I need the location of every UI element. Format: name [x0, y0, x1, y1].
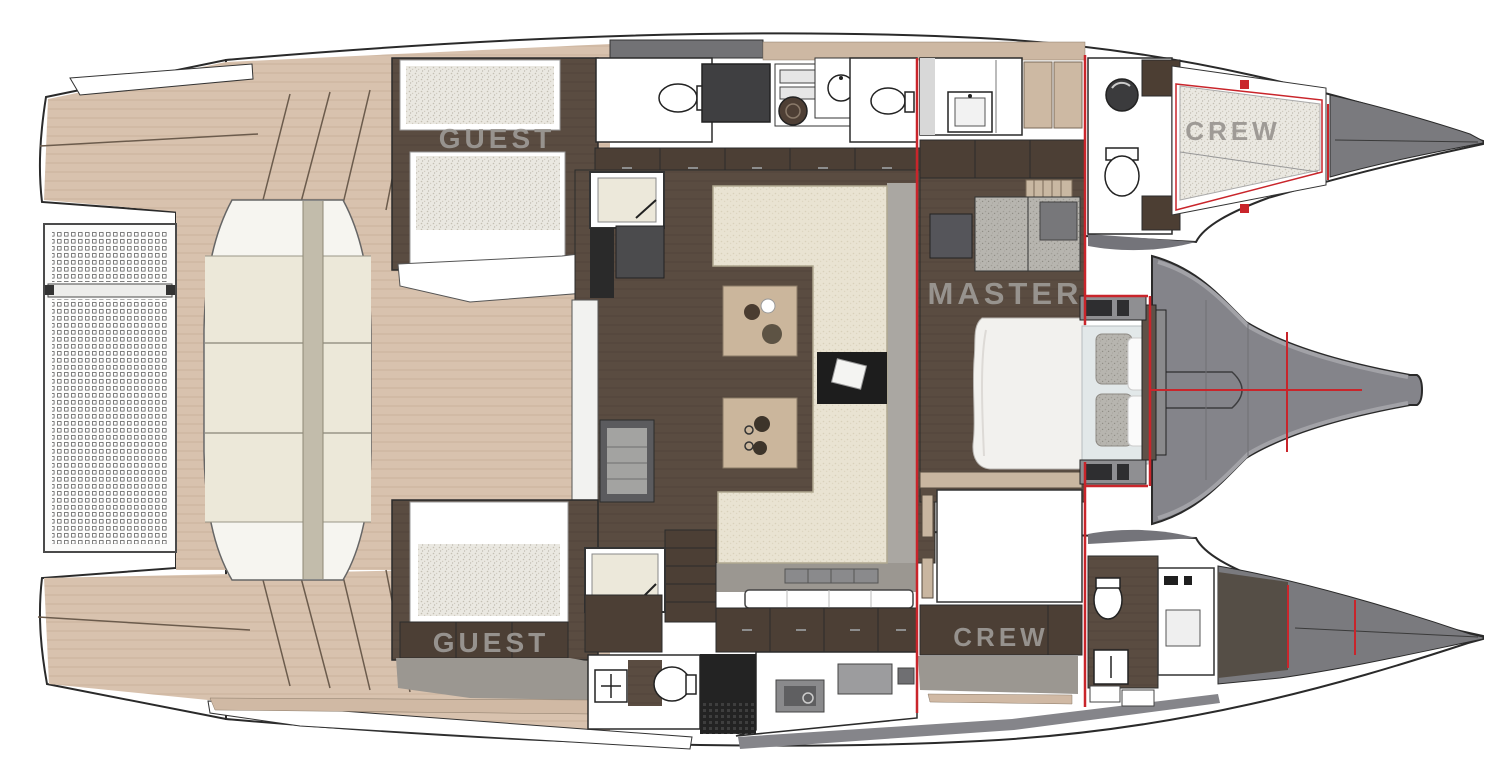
hinge	[45, 285, 54, 295]
crew-deck-band	[918, 656, 1078, 694]
crew-berth-panel	[937, 490, 1082, 602]
coffee-table	[723, 286, 797, 356]
master-aft-sill	[920, 472, 1082, 488]
crew-cabinet-white	[1158, 568, 1214, 675]
galley-cabinets	[585, 595, 662, 652]
master-bed	[973, 305, 1166, 469]
companionway-stairs	[665, 530, 716, 622]
aft-platform-trampoline	[44, 224, 176, 552]
crew-seat	[1122, 690, 1154, 706]
guest-starboard-label: GUEST	[433, 627, 549, 658]
crew-port-label: CREW	[1185, 116, 1280, 146]
gray-cabinet	[616, 226, 664, 278]
washer-door-icon	[779, 97, 807, 125]
nightstand	[1080, 296, 1146, 320]
port-bow-deck	[1330, 95, 1483, 177]
crew-teak-strip	[928, 694, 1072, 704]
deck-grate-hatch	[700, 654, 756, 700]
galley-sink-icon	[776, 680, 824, 712]
toilet-icon	[1094, 578, 1122, 619]
port-bathroom-2	[850, 58, 917, 142]
guest-port-label: GUEST	[439, 123, 555, 154]
master-duvet	[973, 318, 1085, 469]
hull-access-hatch	[600, 420, 654, 502]
master-bench	[930, 214, 972, 258]
ac-vent-grille	[1026, 180, 1072, 197]
floor-plan-canvas: GUEST CREW MASTER CREW GUEST	[0, 0, 1500, 780]
appliance	[898, 668, 914, 684]
nightstand	[1080, 460, 1146, 484]
coffee-table	[723, 398, 797, 468]
toilet-icon	[1105, 148, 1139, 196]
pillow	[1096, 334, 1132, 384]
crew-quarters-starboard	[918, 490, 1214, 706]
black-cabinet	[590, 228, 614, 298]
catamaran-floor-plan: GUEST CREW MASTER CREW GUEST	[0, 0, 1500, 780]
master-forward-cabinets	[920, 140, 1085, 178]
hinge	[166, 285, 175, 295]
cooktop	[838, 664, 892, 694]
salon-carpet-border-right	[887, 183, 917, 563]
master-bathroom	[920, 58, 1022, 135]
crew-starboard-label: CREW	[953, 622, 1048, 652]
guest-cabin-port	[392, 58, 598, 302]
toilet-icon	[659, 84, 707, 112]
sink-icon	[1094, 650, 1128, 684]
coachroof-hatch-gray	[610, 40, 763, 58]
aft-sunpad	[204, 200, 371, 580]
crew-seat	[1090, 686, 1120, 702]
pillow	[1096, 394, 1132, 446]
port-bathroom	[596, 58, 712, 142]
sunpad-center-channel	[303, 201, 323, 579]
toilet-icon	[871, 88, 905, 114]
tech-cabinet	[702, 64, 770, 122]
starboard-bow-locker	[1218, 572, 1288, 678]
master-label: MASTER	[928, 276, 1083, 311]
